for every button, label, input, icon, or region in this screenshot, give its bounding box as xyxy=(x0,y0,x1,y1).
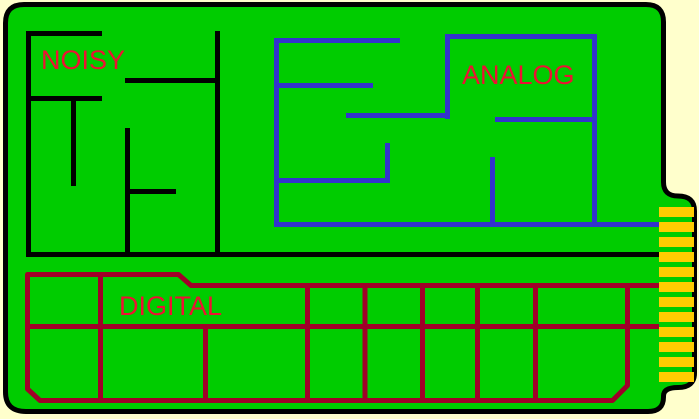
connector-finger xyxy=(659,297,694,307)
connector-finger xyxy=(659,327,694,337)
pcb-diagram-canvas: NOISY ANALOG DIGITAL xyxy=(0,0,699,419)
connector-finger xyxy=(659,282,694,292)
noisy-region-label: NOISY xyxy=(41,45,125,75)
analog-region-label: ANALOG xyxy=(462,60,575,90)
connector-finger xyxy=(659,267,694,277)
pcb-diagram: NOISY ANALOG DIGITAL xyxy=(0,0,699,419)
connector-finger xyxy=(659,237,694,247)
connector-finger xyxy=(659,252,694,262)
connector-finger xyxy=(659,312,694,322)
connector-finger xyxy=(659,372,694,382)
connector-finger xyxy=(659,207,694,217)
connector-finger xyxy=(659,357,694,367)
connector-finger xyxy=(659,342,694,352)
connector-finger xyxy=(659,222,694,232)
digital-region-label: DIGITAL xyxy=(119,291,222,321)
